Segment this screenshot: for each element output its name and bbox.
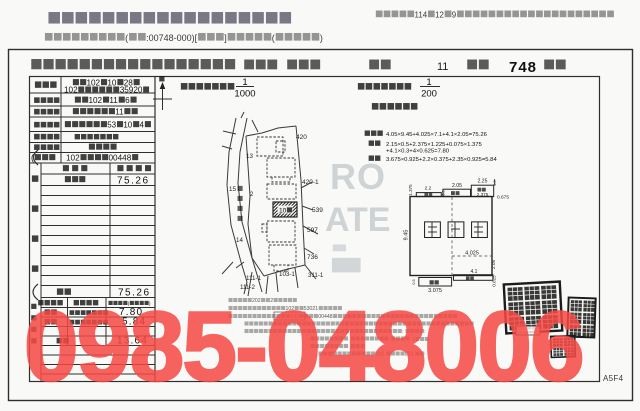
svg-text:2.2: 2.2 (425, 186, 432, 192)
svg-text:■■■■■■■■■ (■■ :00748-000)[■■■: ■■■■■■■■■ (■■ :00748-000)[■■■ ]■■■■■ (■■… (44, 29, 323, 46)
svg-text:■■: ■■ (368, 138, 381, 150)
svg-text:311-1: 311-1 (308, 272, 324, 279)
svg-text:■■: ■■ (332, 239, 346, 255)
svg-text:2.375: 2.375 (477, 192, 489, 197)
svg-text:3.675×0.925+2.2×0.375+2.35×0.9: 3.675×0.925+2.2×0.375+2.35×0.925=5.84 (386, 157, 497, 163)
svg-text:1.375: 1.375 (408, 184, 413, 196)
svg-text:103-1: 103-1 (279, 271, 295, 278)
svg-text:■■■■: ■■■■ (34, 119, 61, 131)
svg-text:■■■■■■■■■■■■■■■■■■: ■■■■■■■■■■■■■■■■■■ (47, 4, 292, 31)
svg-text:420-1: 420-1 (302, 179, 319, 186)
svg-text:2: 2 (250, 192, 254, 198)
svg-text:ATE: ATE (325, 201, 390, 239)
svg-text:2.15×0.5+2.375×1.225+0.075×1.3: 2.15×0.5+2.375×1.225+0.075×1.375 (386, 142, 483, 148)
svg-text:111-1: 111-1 (246, 275, 261, 282)
svg-text:14: 14 (236, 237, 243, 244)
svg-text:11: 11 (437, 61, 448, 73)
svg-text:2.05: 2.05 (452, 183, 462, 189)
svg-text:■■■: ■■■ (34, 77, 57, 92)
svg-text:RO: RO (330, 156, 386, 197)
svg-text:■: ■ (159, 73, 165, 85)
svg-text:597: 597 (307, 227, 318, 234)
svg-text:4.025: 4.025 (465, 251, 479, 257)
svg-text:■■■■■■■: ■■■■■■■ (357, 79, 412, 94)
svg-text:■: ■ (31, 231, 39, 246)
svg-text:4.1: 4.1 (471, 269, 478, 275)
svg-text:■■■: ■■■ (64, 172, 86, 186)
svg-text:■■: ■■ (429, 277, 439, 287)
svg-text:736: 736 (307, 254, 318, 261)
svg-text:■■■■■■ 53■ 10■ 4■: ■■■■■■ 53■ 10■ 4■ (64, 117, 151, 131)
svg-text:■■■■: ■■■■ (34, 106, 61, 118)
svg-text:1000: 1000 (234, 89, 255, 100)
svg-text:■■■ ■■■■: ■■■ ■■■■ (180, 79, 235, 94)
svg-text:75.26: 75.26 (117, 176, 150, 187)
svg-text:■■■■■ 114■ 12■ 9■■■■■■■■■■■■■■: ■■■■■ 114■ 12■ 9■■■■■■■■■■■■■■■■■■■■ (375, 5, 614, 21)
svg-text:■■: ■■ (451, 188, 461, 197)
svg-text:■: ■ (237, 212, 243, 224)
svg-text:200: 200 (421, 89, 437, 100)
svg-text:■■■■: ■■■■ (34, 95, 61, 107)
svg-text:■■■■■■■■■■■■■■■■■: ■■■■■■■■■■■■■■■■■ (30, 52, 236, 75)
svg-text:0.5: 0.5 (411, 278, 416, 284)
svg-text:4.05×9.45+4.025×7.1+4.1×2.05=7: 4.05×9.45+4.025×7.1+4.1×2.05=75.26 (386, 132, 488, 138)
svg-text:□□□: □□□ (424, 213, 495, 244)
svg-text:■: ■ (31, 261, 39, 276)
svg-text:A5F4: A5F4 (603, 374, 624, 383)
svg-text:+4.1×0.3+4×0.625=7.80: +4.1×0.3+4×0.625=7.80 (386, 149, 450, 155)
svg-text:■■■■■■ 11■■: ■■■■■■ 11■■ (72, 104, 138, 118)
svg-text:420: 420 (296, 134, 307, 141)
svg-text:748: 748 (509, 59, 537, 76)
svg-text:13: 13 (246, 153, 253, 160)
svg-text:■■■■■■: ■■■■■■ (371, 99, 418, 114)
svg-text:2.05: 2.05 (491, 260, 497, 270)
svg-text:9.45: 9.45 (404, 230, 410, 241)
svg-text:0.5: 0.5 (441, 189, 446, 195)
svg-text:■■■■: ■■■■ (117, 161, 154, 175)
svg-text:■: ■ (31, 171, 39, 186)
svg-text:■■■: ■■■ (286, 53, 321, 75)
svg-text:2.25: 2.25 (478, 179, 488, 185)
svg-text:■■: ■■ (466, 53, 490, 75)
svg-text:■■■: ■■■ (243, 53, 278, 75)
svg-text:0.675: 0.675 (497, 195, 509, 201)
svg-text:0.625: 0.625 (492, 275, 497, 287)
svg-text:■: ■ (31, 201, 39, 216)
svg-text:15: 15 (229, 186, 236, 193)
svg-text:■■: ■■ (543, 53, 567, 75)
svg-text:■■: ■■ (368, 53, 392, 75)
svg-text:539: 539 (312, 207, 323, 214)
